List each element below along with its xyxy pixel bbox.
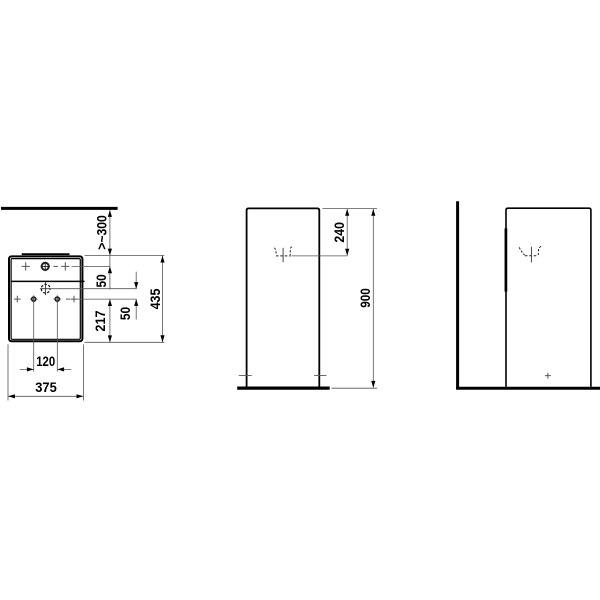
svg-text:50: 50 bbox=[93, 274, 109, 287]
svg-text:50: 50 bbox=[117, 307, 133, 320]
svg-text:>~300: >~300 bbox=[93, 215, 109, 250]
svg-text:375: 375 bbox=[35, 379, 57, 395]
svg-text:240: 240 bbox=[331, 222, 347, 243]
svg-text:217: 217 bbox=[92, 310, 108, 331]
svg-text:900: 900 bbox=[357, 288, 373, 308]
svg-text:435: 435 bbox=[147, 288, 163, 309]
svg-text:120: 120 bbox=[36, 353, 55, 369]
